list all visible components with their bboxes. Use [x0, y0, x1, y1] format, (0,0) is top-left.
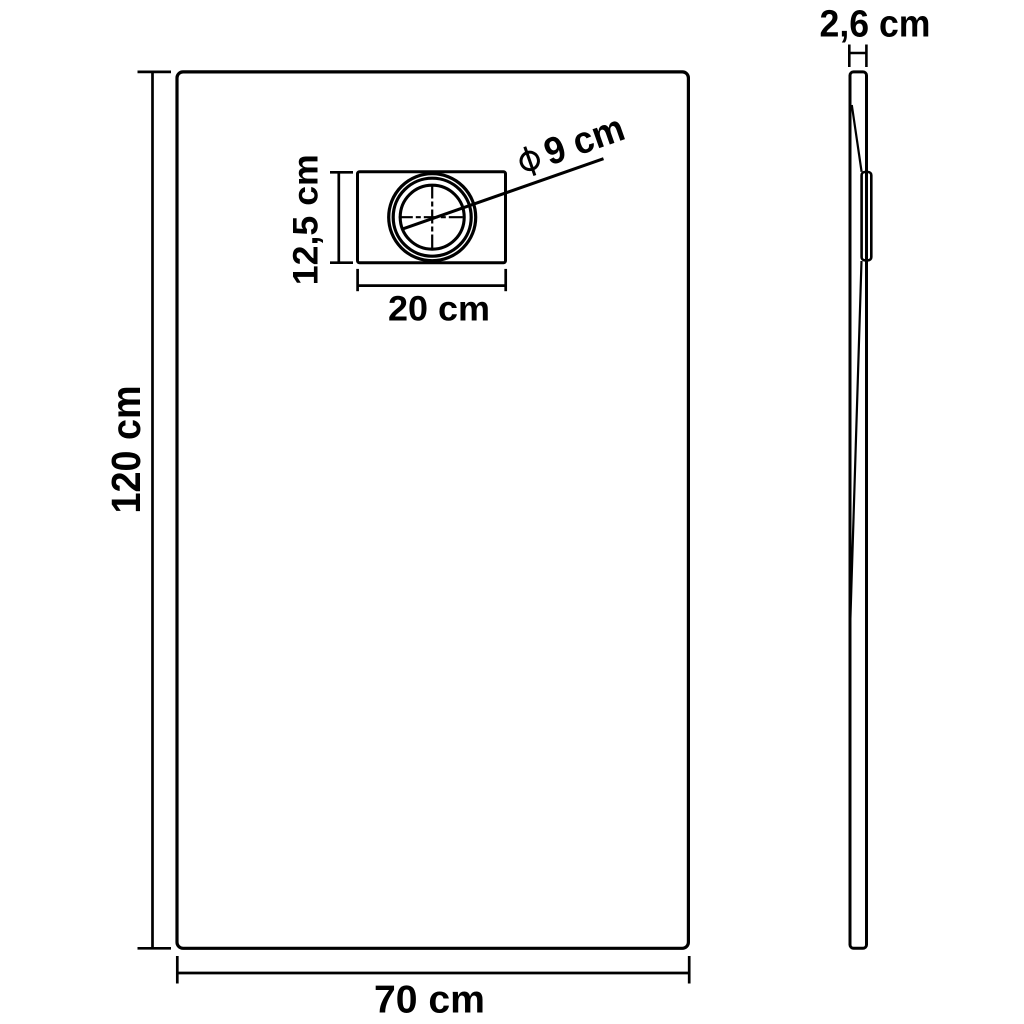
svg-text:2,6 cm: 2,6 cm — [820, 4, 931, 46]
svg-text:70 cm: 70 cm — [374, 979, 485, 1022]
svg-text:20 cm: 20 cm — [388, 289, 490, 328]
svg-text:120 cm: 120 cm — [103, 386, 149, 514]
svg-text:12,5 cm: 12,5 cm — [287, 154, 326, 285]
